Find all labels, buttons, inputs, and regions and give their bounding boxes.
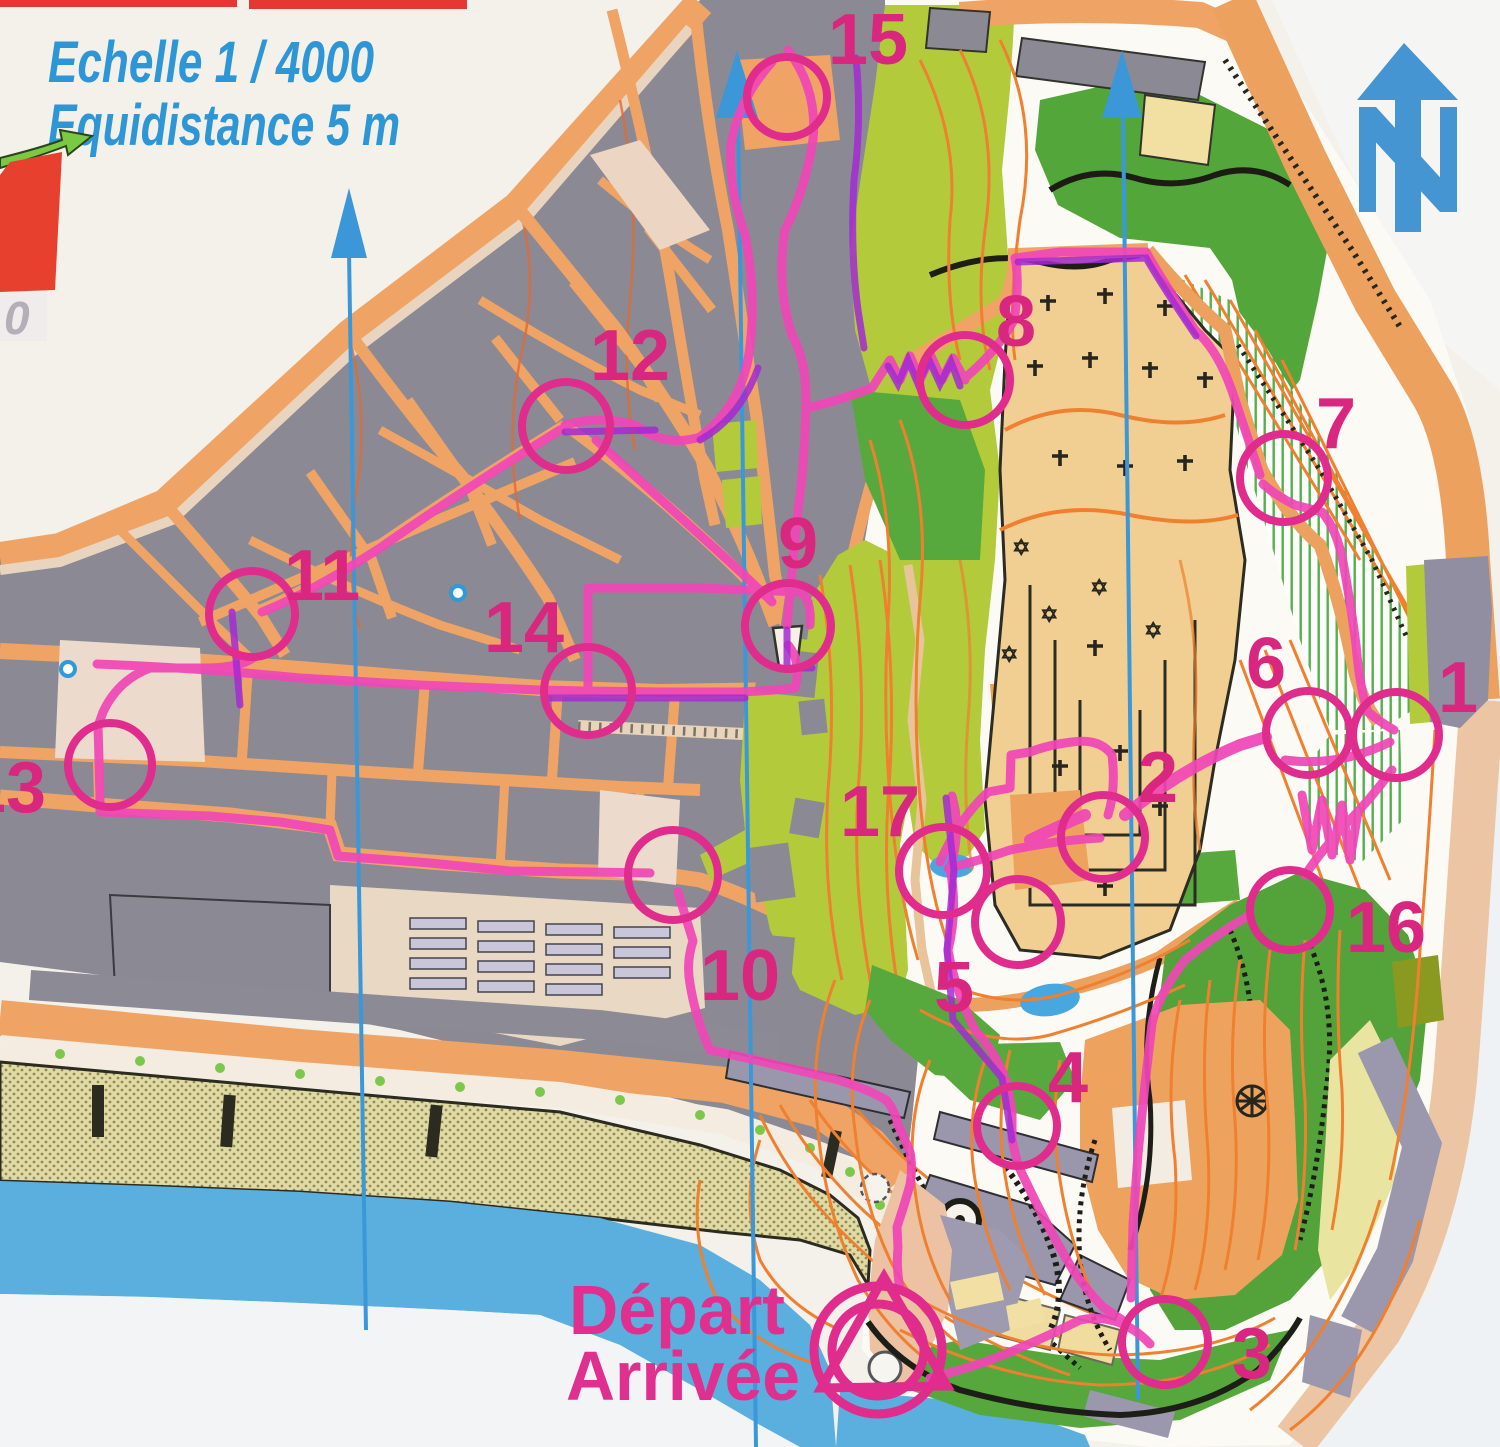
svg-text:6: 6 [1246, 624, 1286, 704]
svg-text:✡: ✡ [1144, 618, 1162, 643]
svg-text:✡: ✡ [1012, 535, 1030, 560]
svg-text:13: 13 [0, 748, 46, 828]
svg-text:14: 14 [484, 588, 564, 668]
svg-text:0: 0 [4, 292, 30, 344]
svg-text:Echelle 1 / 4000: Echelle 1 / 4000 [48, 30, 374, 95]
svg-text:✡: ✡ [1000, 642, 1018, 667]
svg-text:9: 9 [778, 504, 818, 584]
svg-text:2: 2 [1138, 738, 1178, 818]
svg-text:✡: ✡ [1040, 602, 1058, 627]
svg-text:4: 4 [1048, 1038, 1088, 1118]
svg-text:16: 16 [1346, 888, 1426, 968]
svg-text:17: 17 [840, 772, 920, 852]
svg-text:Arrivée: Arrivée [566, 1337, 800, 1415]
svg-text:5: 5 [934, 948, 974, 1028]
svg-text:✡: ✡ [1090, 575, 1108, 600]
svg-text:11: 11 [284, 536, 360, 616]
svg-text:12: 12 [590, 316, 670, 396]
svg-text:7: 7 [1316, 384, 1356, 464]
svg-text:3: 3 [1232, 1314, 1272, 1394]
svg-text:Equidistance 5 m: Equidistance 5 m [48, 93, 400, 158]
svg-text:15: 15 [828, 0, 908, 80]
svg-text:10: 10 [700, 936, 780, 1016]
svg-text:1: 1 [1438, 648, 1478, 728]
svg-text:8: 8 [996, 282, 1036, 362]
